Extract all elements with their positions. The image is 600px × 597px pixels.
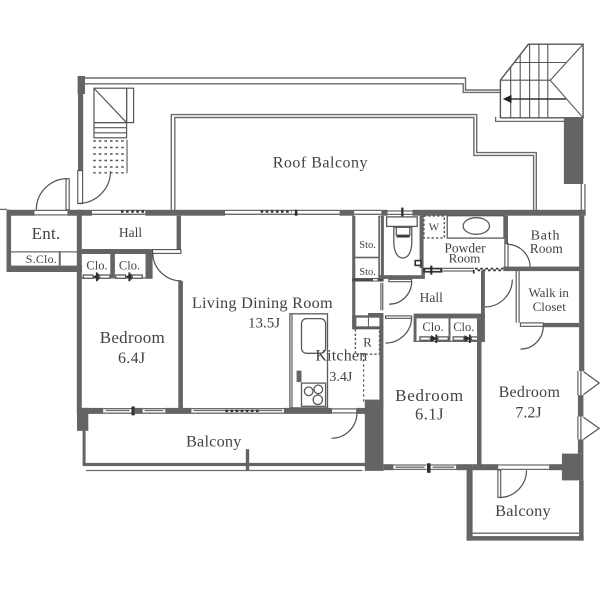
svg-text:13.5J: 13.5J <box>248 315 280 331</box>
svg-text:Hall: Hall <box>119 225 142 240</box>
svg-text:Roof Balcony: Roof Balcony <box>273 154 368 171</box>
svg-text:6.1J: 6.1J <box>415 404 444 423</box>
svg-text:Bedroom: Bedroom <box>395 386 464 405</box>
svg-text:Sto.: Sto. <box>359 240 376 251</box>
svg-text:R: R <box>363 334 372 349</box>
svg-text:S.Clo.: S.Clo. <box>26 252 57 266</box>
svg-text:Sto.: Sto. <box>359 267 376 278</box>
svg-text:7.2J: 7.2J <box>515 405 541 422</box>
svg-text:Kitchen: Kitchen <box>315 348 367 365</box>
svg-text:Bedroom: Bedroom <box>100 328 165 347</box>
svg-text:Clo.: Clo. <box>453 320 474 334</box>
svg-text:Room: Room <box>530 241 564 256</box>
svg-text:3.4J: 3.4J <box>329 370 353 385</box>
svg-text:Hall: Hall <box>420 290 443 305</box>
svg-text:Living Dining Room: Living Dining Room <box>192 293 333 312</box>
svg-text:Balcony: Balcony <box>495 501 551 520</box>
svg-text:Closet: Closet <box>533 299 567 314</box>
svg-text:6.4J: 6.4J <box>118 350 145 367</box>
svg-text:Clo.: Clo. <box>119 258 140 272</box>
svg-text:Walk in: Walk in <box>528 285 569 300</box>
svg-text:Room: Room <box>449 251 481 266</box>
svg-text:Clo.: Clo. <box>422 320 443 334</box>
svg-text:Balcony: Balcony <box>186 432 242 451</box>
svg-text:Clo.: Clo. <box>86 258 107 272</box>
svg-text:Bedroom: Bedroom <box>499 384 561 401</box>
svg-text:Ent.: Ent. <box>32 224 61 243</box>
svg-text:W: W <box>429 221 440 233</box>
